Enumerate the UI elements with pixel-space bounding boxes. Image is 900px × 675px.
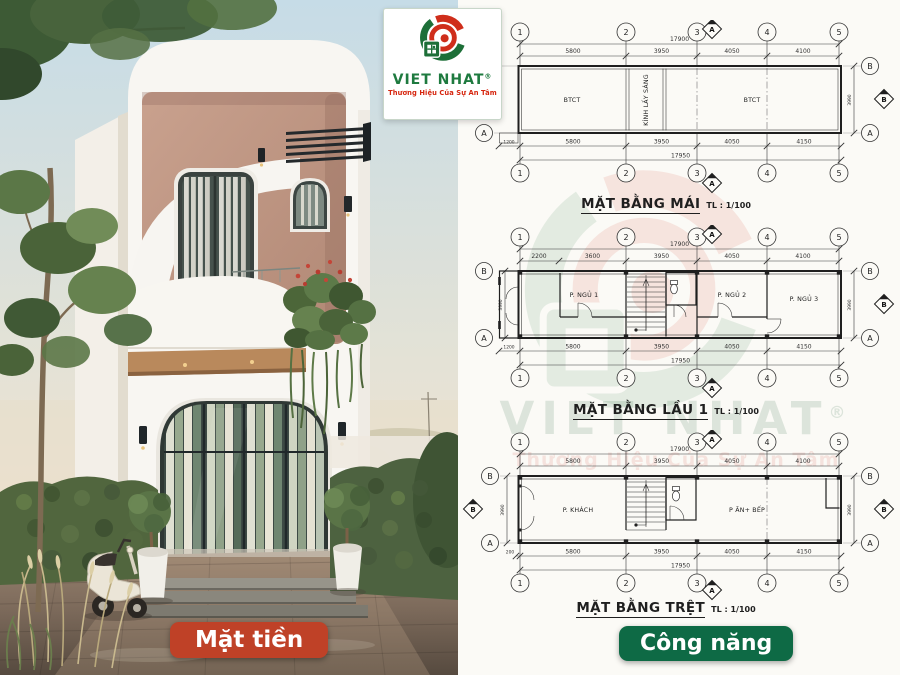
svg-text:3990: 3990 bbox=[847, 504, 853, 515]
svg-text:2: 2 bbox=[623, 233, 628, 242]
svg-text:A: A bbox=[709, 231, 715, 239]
svg-text:BTCT: BTCT bbox=[564, 97, 581, 104]
svg-text:B: B bbox=[867, 267, 873, 276]
svg-text:A: A bbox=[867, 539, 873, 548]
svg-text:B: B bbox=[881, 506, 886, 514]
svg-text:3600: 3600 bbox=[585, 253, 600, 260]
function-badge: Công năng bbox=[619, 626, 793, 661]
svg-text:4: 4 bbox=[764, 374, 769, 383]
stairs bbox=[626, 273, 666, 337]
svg-text:4: 4 bbox=[764, 28, 769, 37]
svg-text:5: 5 bbox=[836, 374, 841, 383]
svg-text:17900: 17900 bbox=[670, 36, 689, 43]
svg-text:A: A bbox=[481, 334, 487, 343]
svg-text:5800: 5800 bbox=[565, 458, 580, 465]
svg-text:200: 200 bbox=[506, 550, 515, 556]
stairs bbox=[626, 478, 666, 530]
svg-text:B: B bbox=[881, 301, 886, 309]
svg-text:A: A bbox=[867, 334, 873, 343]
svg-text:5: 5 bbox=[836, 579, 841, 588]
svg-text:4150: 4150 bbox=[796, 139, 811, 146]
svg-text:5800: 5800 bbox=[565, 549, 580, 556]
svg-text:3950: 3950 bbox=[654, 344, 669, 351]
svg-text:4: 4 bbox=[764, 169, 769, 178]
svg-text:A: A bbox=[709, 180, 715, 188]
svg-text:1: 1 bbox=[517, 169, 522, 178]
svg-text:P. NGỦ 3: P. NGỦ 3 bbox=[790, 293, 819, 303]
entry-steps bbox=[132, 578, 368, 617]
svg-text:A: A bbox=[709, 436, 715, 444]
svg-text:17950: 17950 bbox=[671, 153, 690, 160]
building: BTCT KÍNH LẤY SÁNG BTCT bbox=[500, 66, 842, 143]
poster: VIET NHAT® Thương Hiệu Của Sự An Tâm 123… bbox=[0, 0, 900, 675]
svg-text:5: 5 bbox=[836, 169, 841, 178]
ground-plan-title: MẶT BẰNG TRỆTTL : 1/100 bbox=[516, 600, 816, 616]
svg-text:BTCT: BTCT bbox=[744, 97, 761, 104]
wood-soffit bbox=[128, 348, 306, 376]
svg-text:2: 2 bbox=[623, 579, 628, 588]
section-markers: A A B bbox=[703, 20, 894, 193]
brand-logo-icon bbox=[416, 14, 470, 68]
svg-text:3950: 3950 bbox=[654, 458, 669, 465]
svg-text:5800: 5800 bbox=[565, 48, 580, 55]
svg-text:4050: 4050 bbox=[724, 458, 739, 465]
svg-text:B: B bbox=[487, 472, 493, 481]
svg-text:4100: 4100 bbox=[795, 458, 810, 465]
svg-text:2: 2 bbox=[623, 374, 628, 383]
svg-text:4050: 4050 bbox=[724, 549, 739, 556]
svg-text:3: 3 bbox=[694, 579, 699, 588]
svg-text:3: 3 bbox=[694, 28, 699, 37]
svg-text:4150: 4150 bbox=[796, 344, 811, 351]
svg-text:B: B bbox=[470, 506, 475, 514]
svg-text:2200: 2200 bbox=[531, 253, 546, 260]
svg-text:5: 5 bbox=[836, 28, 841, 37]
svg-text:3950: 3950 bbox=[654, 48, 669, 55]
svg-text:17900: 17900 bbox=[670, 241, 689, 248]
svg-text:A: A bbox=[487, 539, 493, 548]
svg-text:1200: 1200 bbox=[503, 140, 514, 146]
svg-text:B: B bbox=[881, 96, 886, 104]
svg-text:3950: 3950 bbox=[654, 253, 669, 260]
svg-text:4050: 4050 bbox=[724, 48, 739, 55]
svg-text:5: 5 bbox=[836, 438, 841, 447]
svg-text:KÍNH LẤY SÁNG: KÍNH LẤY SÁNG bbox=[640, 74, 650, 126]
svg-text:1: 1 bbox=[517, 438, 522, 447]
arch-window bbox=[290, 178, 330, 232]
svg-text:P ĂN+ BẾP: P ĂN+ BẾP bbox=[729, 504, 765, 514]
svg-text:4: 4 bbox=[764, 438, 769, 447]
svg-text:A: A bbox=[709, 587, 715, 595]
svg-text:1: 1 bbox=[517, 374, 522, 383]
svg-text:3: 3 bbox=[694, 374, 699, 383]
svg-text:A: A bbox=[867, 129, 873, 138]
section-markers: A A B bbox=[703, 225, 894, 398]
svg-text:17950: 17950 bbox=[671, 563, 690, 570]
toilet bbox=[666, 478, 696, 521]
svg-text:4: 4 bbox=[764, 233, 769, 242]
facade-badge: Mặt tiền bbox=[170, 622, 328, 658]
svg-text:4: 4 bbox=[764, 579, 769, 588]
dimensions: 17900 58003950 40504100 1200 58003950 40… bbox=[496, 36, 857, 163]
svg-text:3990: 3990 bbox=[847, 94, 853, 105]
svg-text:B: B bbox=[867, 62, 873, 71]
svg-text:A: A bbox=[709, 26, 715, 34]
brand-logo-card: VIET NHAT® Thương Hiệu Của Sự An Tâm bbox=[383, 8, 502, 120]
svg-text:5: 5 bbox=[836, 233, 841, 242]
svg-text:17900: 17900 bbox=[670, 446, 689, 453]
svg-text:2: 2 bbox=[623, 28, 628, 37]
svg-text:1200: 1200 bbox=[503, 345, 514, 351]
svg-text:3950: 3950 bbox=[654, 549, 669, 556]
svg-text:4150: 4150 bbox=[796, 549, 811, 556]
svg-text:B: B bbox=[481, 267, 487, 276]
svg-text:P. NGỦ 1: P. NGỦ 1 bbox=[570, 289, 599, 299]
svg-text:3990: 3990 bbox=[847, 299, 853, 310]
section-markers: A A B B bbox=[464, 430, 894, 600]
svg-text:P. NGỦ 2: P. NGỦ 2 bbox=[718, 289, 747, 299]
roof-plan-title: MẶT BẰNG MÁITL : 1/100 bbox=[516, 196, 816, 212]
floor1-plan-title: MẶT BẰNG LẦU 1TL : 1/100 bbox=[516, 402, 816, 418]
svg-text:1: 1 bbox=[517, 579, 522, 588]
svg-text:3: 3 bbox=[694, 169, 699, 178]
svg-text:3: 3 bbox=[694, 233, 699, 242]
svg-text:B: B bbox=[867, 472, 873, 481]
svg-text:2: 2 bbox=[623, 438, 628, 447]
svg-text:A: A bbox=[709, 385, 715, 393]
svg-text:A: A bbox=[481, 129, 487, 138]
svg-text:P. KHÁCH: P. KHÁCH bbox=[563, 505, 594, 514]
svg-text:5800: 5800 bbox=[565, 344, 580, 351]
dimensions: 17900 58003950 40504100 200 58003950 405… bbox=[500, 446, 857, 573]
toilet bbox=[666, 273, 696, 318]
svg-text:1: 1 bbox=[517, 28, 522, 37]
building: P. KHÁCH P ĂN+ BẾP bbox=[518, 475, 841, 543]
svg-text:4100: 4100 bbox=[795, 48, 810, 55]
svg-text:3990: 3990 bbox=[498, 299, 504, 310]
plans-panel: VIET NHAT® Thương Hiệu Của Sự An Tâm 123… bbox=[458, 0, 900, 675]
svg-text:1: 1 bbox=[517, 233, 522, 242]
svg-text:4100: 4100 bbox=[795, 253, 810, 260]
svg-text:2: 2 bbox=[623, 169, 628, 178]
svg-text:4050: 4050 bbox=[724, 344, 739, 351]
brand-tagline: Thương Hiệu Của Sự An Tâm bbox=[384, 89, 501, 97]
svg-text:4050: 4050 bbox=[724, 253, 739, 260]
svg-text:3950: 3950 bbox=[654, 139, 669, 146]
svg-text:3: 3 bbox=[694, 438, 699, 447]
svg-text:17950: 17950 bbox=[671, 358, 690, 365]
building: P. NGỦ 1 P. NGỦ 2 P. NGỦ 3 bbox=[498, 270, 841, 338]
svg-text:4050: 4050 bbox=[724, 139, 739, 146]
brand-name: VIET NHAT® bbox=[384, 73, 501, 87]
svg-text:5800: 5800 bbox=[565, 139, 580, 146]
svg-text:3990: 3990 bbox=[500, 504, 506, 515]
